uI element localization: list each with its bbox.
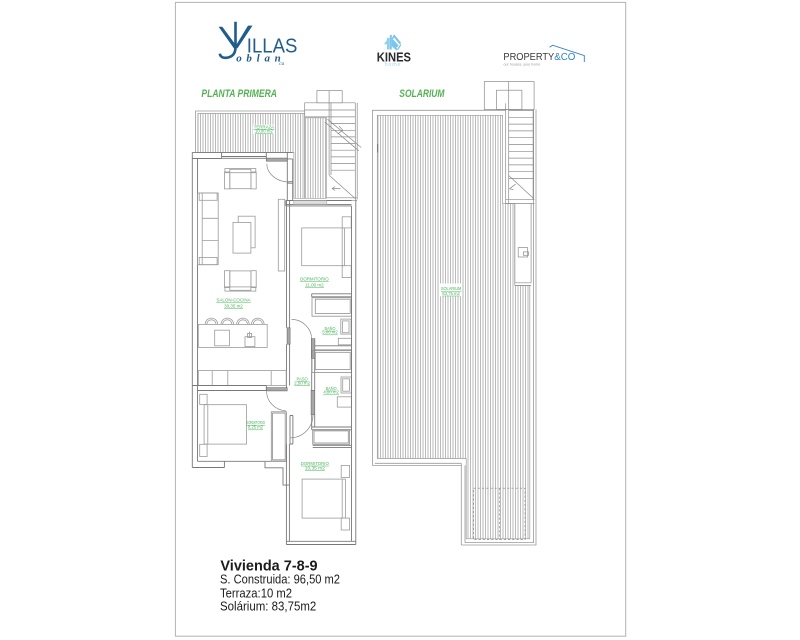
svg-text:10,35 m2: 10,35 m2: [305, 466, 326, 471]
svg-text:our houses, your home: our houses, your home: [504, 62, 541, 66]
svg-text:PLANTA PRIMERA: PLANTA PRIMERA: [201, 88, 277, 100]
svg-text:S. Construida: 96,50 m2: S. Construida: 96,50 m2: [220, 572, 340, 587]
svg-text:11,00 m2: 11,00 m2: [305, 282, 324, 287]
svg-text:2,50 m2: 2,50 m2: [294, 380, 310, 385]
svg-text:&CO: &CO: [554, 52, 575, 63]
svg-text:ILLAS: ILLAS: [247, 35, 298, 57]
svg-text:ca: ca: [279, 61, 284, 67]
svg-text:home: home: [385, 62, 402, 68]
svg-text:Solárium: 83,75m2: Solárium: 83,75m2: [220, 599, 316, 614]
svg-text:83,75 m2: 83,75 m2: [442, 291, 460, 296]
svg-text:8,25 m2: 8,25 m2: [248, 425, 264, 430]
svg-text:4,00 m2: 4,00 m2: [323, 390, 339, 395]
svg-text:SOLARIUM: SOLARIUM: [399, 88, 445, 100]
svg-text:30,35 m2: 30,35 m2: [224, 303, 243, 308]
svg-text:DORMITORIO: DORMITORIO: [300, 277, 329, 282]
svg-text:10,00 m2: 10,00 m2: [255, 129, 273, 134]
svg-text:SALON-COCINA: SALON-COCINA: [216, 298, 250, 303]
svg-text:5,00 m2: 5,00 m2: [322, 330, 338, 335]
svg-text:PROPERTY: PROPERTY: [503, 52, 554, 63]
